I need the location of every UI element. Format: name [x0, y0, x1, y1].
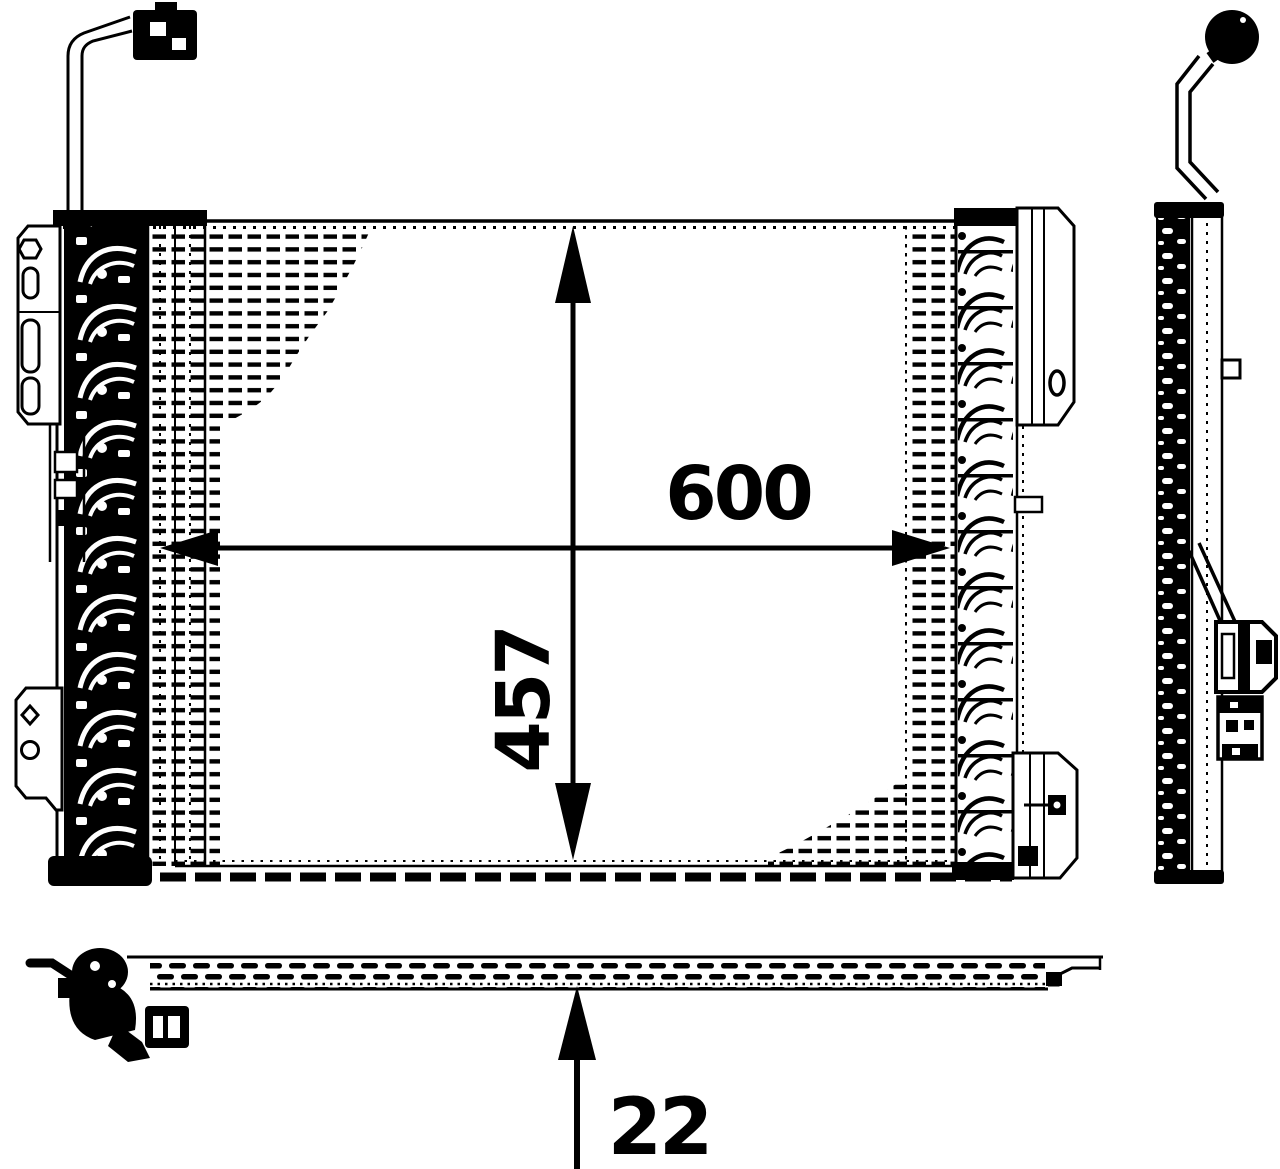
- bracket-top-right-outline: [1017, 208, 1074, 425]
- bracket-hex-hole: [19, 240, 41, 258]
- dim-height-arrow-bottom: [555, 783, 591, 860]
- bracket-bottom-left: [16, 688, 62, 810]
- bracket-slot-upper: [22, 320, 39, 372]
- left-turbulator-column: [66, 226, 148, 866]
- fin-hatch-bottom-right-wedge: [768, 775, 907, 866]
- bracket-top-right: [1017, 208, 1074, 425]
- right-header-cap: [954, 208, 1016, 226]
- inlet-pipe-front: [68, 2, 197, 215]
- bottom-pipe-stub: [30, 963, 72, 976]
- left-header-cap: [53, 210, 207, 226]
- bracket-oval-hole: [23, 268, 38, 298]
- technical-drawing: 600 457 22: [0, 0, 1280, 1169]
- side-strip-dark-column: [1156, 214, 1190, 878]
- bottom-right-bracket-step: [1046, 957, 1100, 986]
- side-connector-block: [1216, 622, 1276, 692]
- dimension-width: 600: [160, 451, 950, 566]
- side-strip-bottom-cap: [1154, 870, 1224, 884]
- bracket-top-right-oval-hole: [1050, 371, 1064, 395]
- bracket-bottom-right: [1013, 753, 1077, 878]
- dim-depth-label: 22: [608, 1083, 711, 1169]
- fin-hatch-top-left-wedge: [205, 226, 372, 420]
- side-pipe-fitting: [1205, 10, 1259, 64]
- right-turbulator-column: [958, 226, 1013, 866]
- bracket-slot-lower: [22, 378, 39, 414]
- dim-height-label: 457: [481, 627, 567, 772]
- drawing-canvas: 600 457 22: [0, 0, 1280, 1169]
- dim-height-arrow-top: [555, 226, 591, 303]
- dimension-depth: 22: [558, 986, 710, 1169]
- bracket-bottom-right-tab: [1018, 846, 1038, 866]
- side-pipe: [1177, 48, 1224, 199]
- right-header-tab: [1015, 497, 1042, 512]
- pipe-fitting-front: [133, 2, 197, 60]
- side-tab: [1222, 360, 1240, 378]
- bottom-strip-core: [150, 959, 1045, 989]
- bottom-left-connector: [145, 1006, 189, 1048]
- dim-depth-arrow: [558, 986, 596, 1060]
- fin-hatch-left-narrow-column: [205, 420, 220, 866]
- side-view: [1154, 10, 1276, 884]
- bracket-round-hole: [22, 742, 39, 759]
- bracket-top-left: [18, 226, 60, 424]
- dimension-height: 457: [481, 226, 591, 860]
- dim-width-label: 600: [665, 451, 810, 537]
- side-lower-connector: [1218, 697, 1262, 759]
- side-strip-top-cap: [1154, 202, 1224, 218]
